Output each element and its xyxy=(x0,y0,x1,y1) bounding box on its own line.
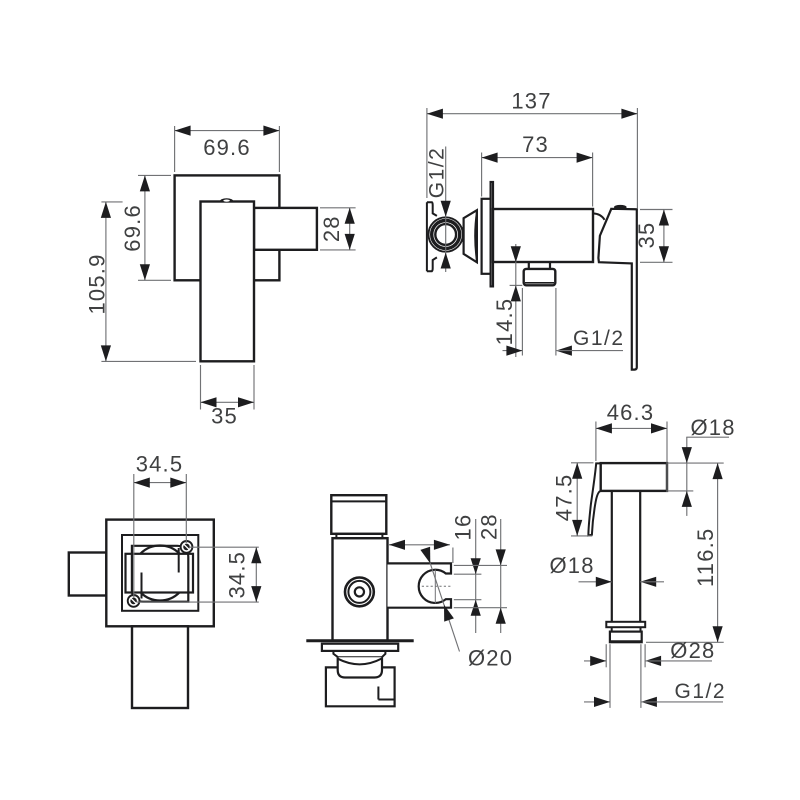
svg-text:14.5: 14.5 xyxy=(492,298,517,346)
svg-text:G1/2: G1/2 xyxy=(573,327,625,350)
svg-text:28: 28 xyxy=(319,215,344,242)
svg-text:69.6: 69.6 xyxy=(120,204,145,252)
svg-text:34.5: 34.5 xyxy=(225,551,250,599)
svg-text:Ø28: Ø28 xyxy=(670,638,715,663)
svg-text:47.5: 47.5 xyxy=(551,474,576,522)
svg-text:28: 28 xyxy=(476,513,501,540)
svg-text:105.9: 105.9 xyxy=(84,253,109,314)
svg-text:Ø18: Ø18 xyxy=(691,415,736,440)
svg-text:137: 137 xyxy=(511,89,551,114)
svg-text:34.5: 34.5 xyxy=(136,451,184,476)
svg-text:35: 35 xyxy=(634,222,659,249)
svg-text:35: 35 xyxy=(211,404,238,429)
svg-text:73: 73 xyxy=(522,132,549,157)
svg-text:G1/2: G1/2 xyxy=(675,680,727,703)
svg-text:116.5: 116.5 xyxy=(693,528,718,587)
svg-text:16: 16 xyxy=(450,514,475,541)
svg-text:Ø20: Ø20 xyxy=(468,646,513,671)
svg-text:69.6: 69.6 xyxy=(203,135,251,160)
svg-text:Ø18: Ø18 xyxy=(550,553,595,578)
svg-text:46.3: 46.3 xyxy=(607,400,655,425)
